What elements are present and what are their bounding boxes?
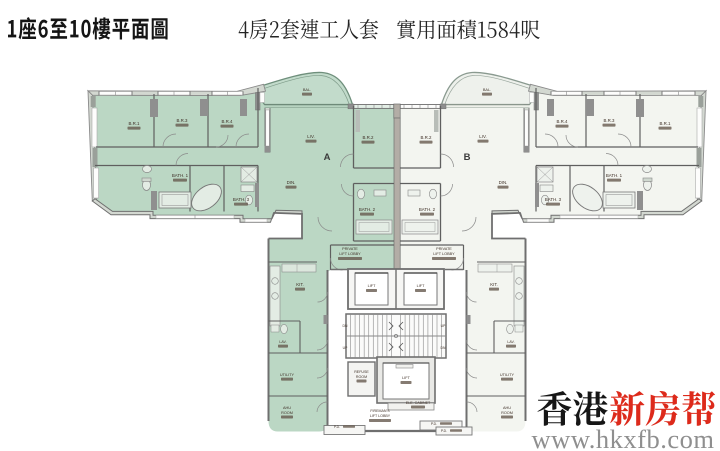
svg-text:ROOM: ROOM: [356, 375, 367, 379]
svg-text:B.R.1: B.R.1: [129, 121, 141, 126]
svg-text:DN: DN: [343, 324, 348, 328]
svg-text:LIV.: LIV.: [479, 134, 486, 139]
svg-text:REFUSE: REFUSE: [354, 370, 369, 374]
svg-text:P.D.: P.D.: [441, 429, 447, 433]
svg-text:UP: UP: [441, 324, 446, 328]
svg-text:P.D.: P.D.: [334, 425, 340, 429]
svg-text:LIFT LOBBY: LIFT LOBBY: [339, 252, 361, 256]
svg-text:KIT.: KIT.: [490, 282, 498, 287]
svg-text:B.R.4: B.R.4: [557, 119, 569, 124]
svg-text:UTILITY: UTILITY: [500, 373, 515, 377]
svg-text:BATH. 2: BATH. 2: [419, 207, 436, 212]
svg-text:LIFT LOBBY: LIFT LOBBY: [370, 414, 391, 418]
svg-text:DIN.: DIN.: [287, 180, 296, 185]
svg-text:B.R.3: B.R.3: [604, 118, 616, 123]
svg-text:www.hkxfb.com: www.hkxfb.com: [532, 424, 715, 451]
svg-text:B.R.1: B.R.1: [660, 121, 672, 126]
svg-text:B.R.3: B.R.3: [177, 118, 189, 123]
svg-text:BATH. 1: BATH. 1: [172, 173, 189, 178]
svg-text:BATH. 3: BATH. 3: [233, 197, 250, 202]
svg-text:UTILITY: UTILITY: [280, 373, 295, 377]
svg-text:AHU: AHU: [283, 406, 291, 410]
svg-text:LIFT: LIFT: [417, 284, 425, 288]
svg-text:FIREMAN'S: FIREMAN'S: [370, 409, 390, 413]
svg-text:A: A: [324, 152, 331, 163]
svg-text:ROOM: ROOM: [501, 411, 513, 415]
svg-text:B.R.2: B.R.2: [363, 135, 375, 140]
svg-text:ELE. CABINET: ELE. CABINET: [406, 401, 431, 405]
svg-text:DIN.: DIN.: [499, 180, 508, 185]
svg-text:KIT.: KIT.: [296, 282, 304, 287]
svg-text:BATH. 1: BATH. 1: [606, 173, 623, 178]
svg-text:LIFT: LIFT: [368, 284, 376, 288]
svg-text:ROOM: ROOM: [281, 411, 293, 415]
svg-text:UP: UP: [343, 346, 348, 350]
svg-text:BAL.: BAL.: [303, 88, 311, 92]
svg-text:LIFT: LIFT: [402, 376, 410, 380]
svg-text:AHU: AHU: [503, 406, 511, 410]
svg-text:BATH. 3: BATH. 3: [545, 197, 562, 202]
svg-text:PRIVATE: PRIVATE: [342, 247, 358, 251]
svg-text:LIFT LOBBY: LIFT LOBBY: [433, 252, 455, 256]
svg-text:BATH. 2: BATH. 2: [359, 207, 376, 212]
svg-text:PRIVATE: PRIVATE: [436, 247, 452, 251]
svg-text:B.R.2: B.R.2: [421, 135, 433, 140]
svg-text:P.D.: P.D.: [431, 422, 437, 426]
svg-text:LIV.: LIV.: [307, 134, 314, 139]
svg-text:BAL.: BAL.: [483, 88, 491, 92]
svg-text:DN: DN: [441, 346, 446, 350]
svg-text:B.R.4: B.R.4: [222, 119, 234, 124]
svg-text:LAV.: LAV.: [279, 340, 286, 344]
svg-text:B: B: [464, 152, 471, 163]
svg-text:LAV.: LAV.: [507, 340, 514, 344]
